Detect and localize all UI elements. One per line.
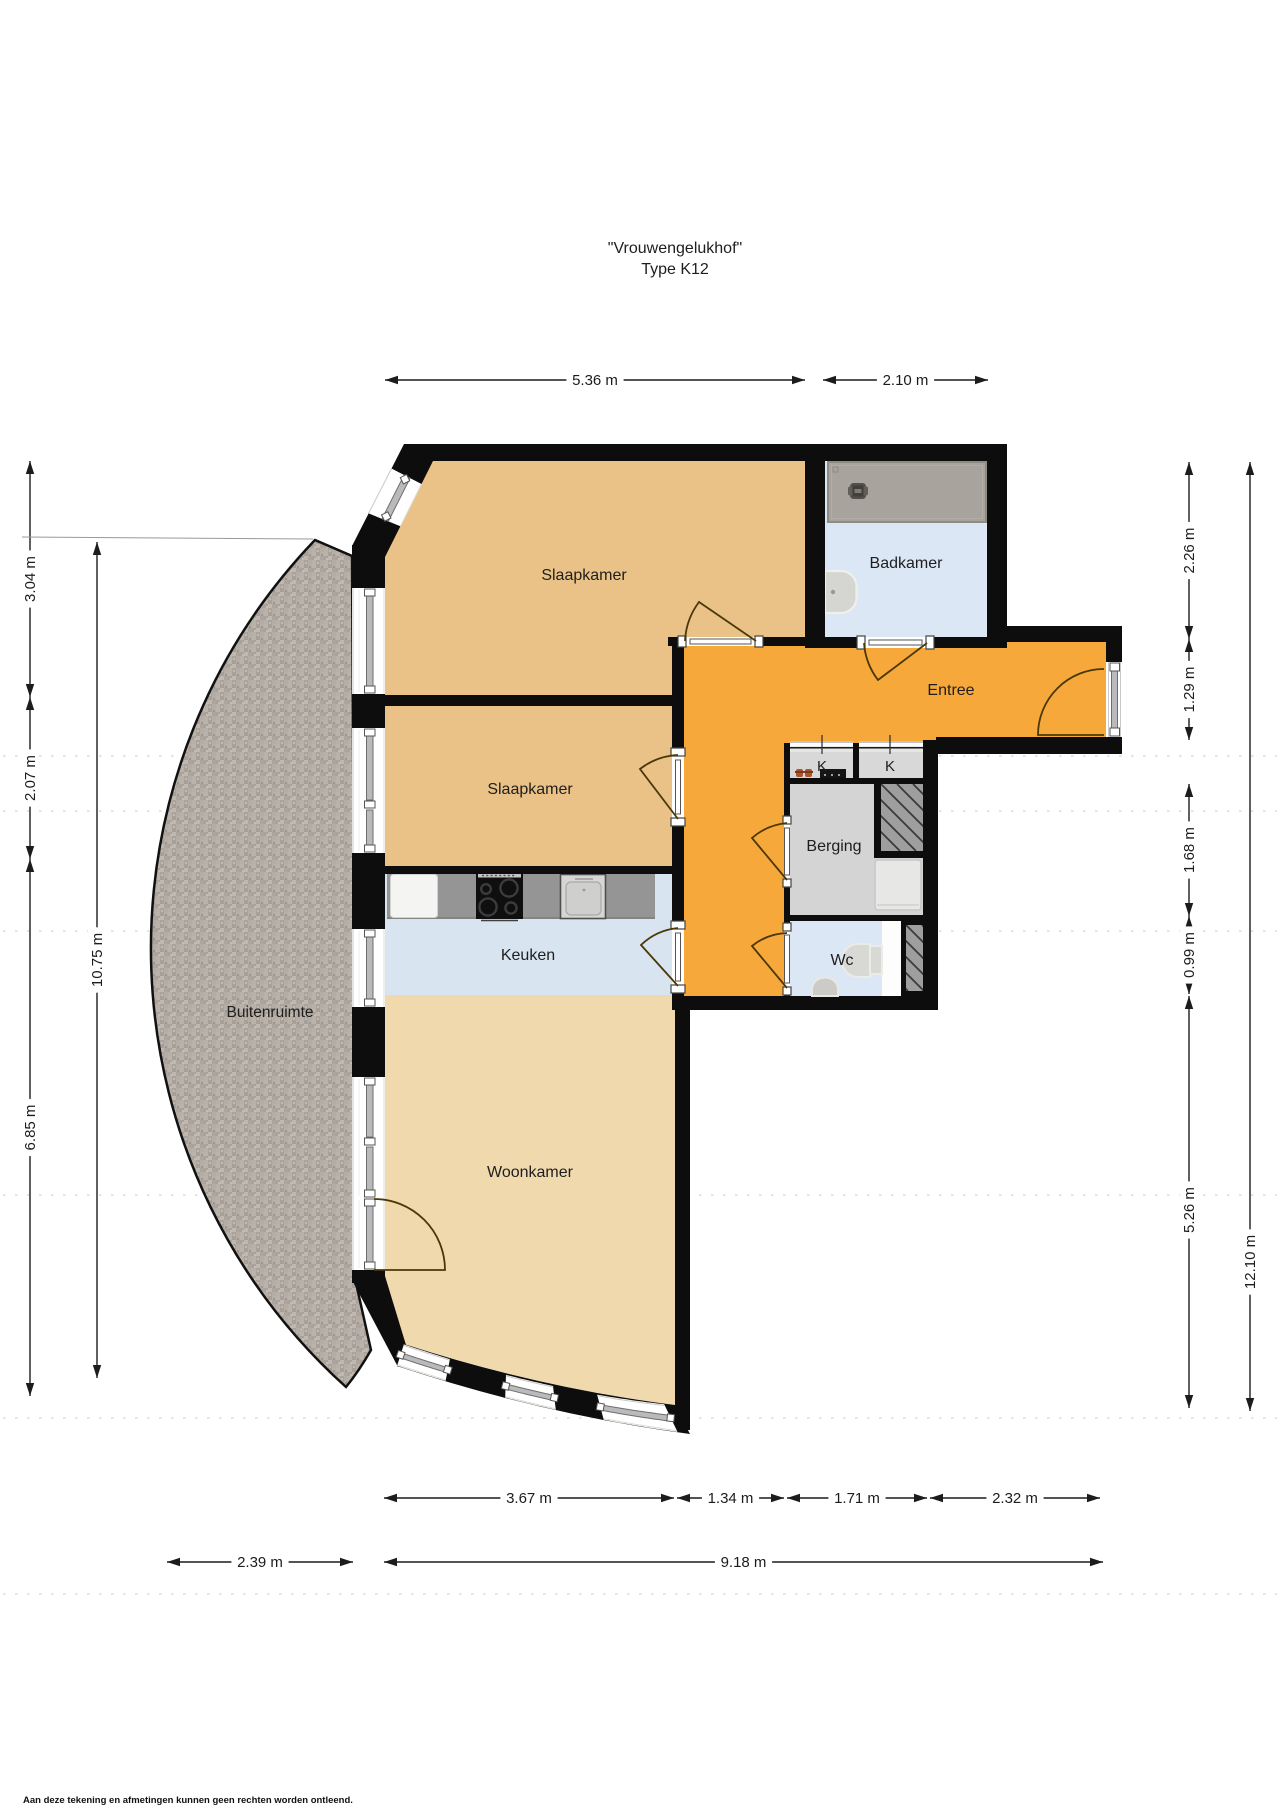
- svg-text:K: K: [817, 758, 827, 775]
- svg-text:Berging: Berging: [806, 838, 861, 855]
- svg-text:Woonkamer: Woonkamer: [487, 1164, 574, 1181]
- svg-text:2.07 m: 2.07 m: [22, 755, 39, 801]
- svg-text:3.67 m: 3.67 m: [506, 1490, 552, 1507]
- svg-text:0.99 m: 0.99 m: [1181, 932, 1198, 978]
- svg-text:1.71 m: 1.71 m: [834, 1490, 880, 1507]
- svg-text:2.39 m: 2.39 m: [237, 1554, 283, 1571]
- svg-text:Buitenruimte: Buitenruimte: [226, 1004, 313, 1021]
- svg-text:1.68 m: 1.68 m: [1181, 827, 1198, 873]
- svg-text:2.10 m: 2.10 m: [883, 372, 929, 389]
- svg-text:Badkamer: Badkamer: [870, 555, 944, 572]
- svg-text:"Vrouwengelukhof": "Vrouwengelukhof": [608, 240, 742, 257]
- svg-text:Keuken: Keuken: [501, 947, 555, 964]
- svg-text:Aan deze tekening en afmetinge: Aan deze tekening en afmetingen kunnen g…: [23, 1795, 353, 1806]
- svg-text:1.29 m: 1.29 m: [1181, 667, 1198, 713]
- svg-text:Entree: Entree: [927, 682, 974, 699]
- svg-text:Wc: Wc: [830, 952, 853, 969]
- svg-text:Type K12: Type K12: [641, 261, 709, 278]
- svg-text:2.26 m: 2.26 m: [1181, 528, 1198, 574]
- svg-text:5.36 m: 5.36 m: [572, 372, 618, 389]
- svg-text:K: K: [885, 758, 895, 775]
- svg-text:Slaapkamer: Slaapkamer: [541, 567, 627, 584]
- svg-text:12.10 m: 12.10 m: [1242, 1235, 1259, 1289]
- svg-text:5.26 m: 5.26 m: [1181, 1187, 1198, 1233]
- svg-text:6.85 m: 6.85 m: [22, 1105, 39, 1151]
- svg-text:3.04 m: 3.04 m: [22, 556, 39, 602]
- svg-text:Slaapkamer: Slaapkamer: [487, 781, 573, 798]
- svg-text:10.75 m: 10.75 m: [89, 933, 106, 987]
- svg-text:2.32 m: 2.32 m: [992, 1490, 1038, 1507]
- svg-text:1.34 m: 1.34 m: [708, 1490, 754, 1507]
- svg-text:9.18 m: 9.18 m: [721, 1554, 767, 1571]
